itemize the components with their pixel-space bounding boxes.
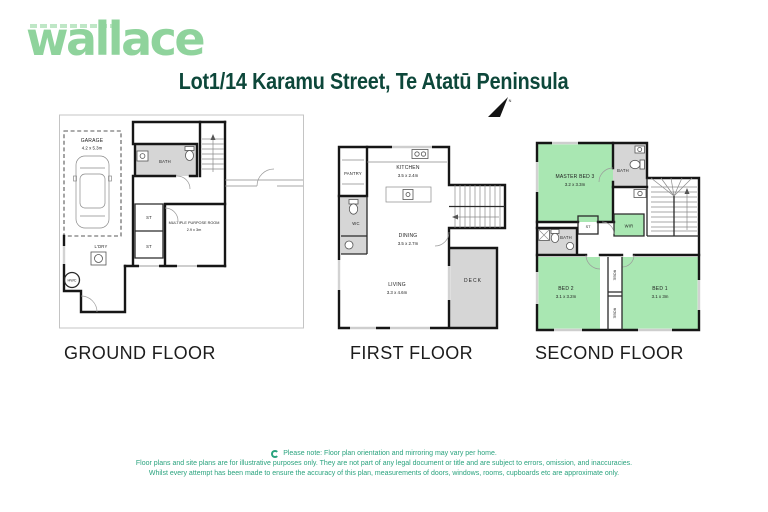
toilet-icon [630, 160, 645, 169]
stove-icon [403, 190, 413, 200]
room-label-kitchen: KITCHEN [396, 165, 420, 171]
room-label-bed1: BED 1 [652, 286, 667, 292]
disclaimer-line3: Whilst every attempt has been made to en… [0, 469, 768, 479]
stairs-ground [202, 138, 224, 172]
ground-floor-plan: GARAGE 4.2 x 5.3m BATH [57, 108, 307, 343]
room-dims-bed2: 3.1 x 3.2m [556, 294, 577, 299]
floor-label-second: SECOND FLOOR [535, 343, 684, 364]
brand-logo: wallace [26, 16, 203, 62]
room-label-bath-lower: BATH [560, 235, 572, 240]
sink-icon [412, 150, 428, 159]
room-label-pantry: PANTRY [344, 171, 362, 176]
disclaimer: Please note: Floor plan orientation and … [0, 448, 768, 478]
page-title: Lot1/14 Karamu Street, Te Atatū Peninsul… [179, 68, 532, 95]
room-dims-living: 3.3 x 4.6m [387, 290, 408, 295]
room-label-ldry: L'DRY [95, 244, 108, 249]
room-dims-kitchen: 3.5 x 2.4m [398, 173, 419, 178]
room-label-mpr: MULTIPLE PURPOSE ROOM [169, 221, 220, 225]
robe-label-lower: ROBE [613, 308, 617, 319]
window [63, 246, 197, 268]
deck-fill [449, 248, 497, 328]
disclaimer-line2: Floor plans and site plans are for illus… [0, 459, 768, 469]
brand-c-icon [271, 450, 279, 458]
floor-label-ground: GROUND FLOOR [64, 343, 216, 364]
room-label-wir: WIR [625, 224, 634, 229]
basin-icon [137, 151, 148, 161]
room-dims-master: 3.2 x 3.3m [565, 182, 586, 187]
room-label-master: MASTER BED 3 [555, 174, 594, 180]
car-icon [74, 156, 112, 228]
basin-icon [635, 146, 645, 153]
room-label-deck: DECK [464, 278, 482, 284]
room-dims-bed1: 3.1 x 3m [652, 294, 669, 299]
floor-label-first: FIRST FLOOR [350, 343, 473, 364]
room-label-st: ST [586, 225, 592, 229]
room-label-bed2: BED 2 [558, 286, 573, 292]
room-label-garage: GARAGE [81, 138, 104, 144]
toilet-icon [551, 230, 559, 243]
room-label-living: LIVING [388, 282, 406, 288]
svg-text:N: N [509, 99, 512, 103]
room-label-hwc: HWC [67, 279, 76, 283]
room-label-bath-top: BATH [617, 168, 629, 173]
basin-icon [566, 242, 573, 249]
north-arrow-icon: N [486, 94, 516, 120]
toilet-icon [185, 147, 194, 161]
room-label-wc: WC [352, 221, 359, 226]
floorplan-page: wallace Lot1/14 Karamu Street, Te Atatū … [0, 0, 768, 512]
room-dims-mpr: 2.9 x 3m [187, 228, 202, 232]
toilet-icon [349, 200, 358, 215]
room-label-st-lower: ST [146, 244, 152, 249]
room-label-st-upper: ST [146, 215, 152, 220]
basin-icon [345, 241, 353, 249]
room-dims-dining: 3.5 x 2.7m [398, 241, 419, 246]
room-label-dining: DINING [399, 233, 418, 239]
room-dims-garage: 4.2 x 5.3m [82, 146, 103, 151]
room-label-bath-ground: BATH [159, 159, 171, 164]
robe-label-upper: ROBE [613, 270, 617, 281]
first-floor-plan: PANTRY WC KITCHEN 3.5 x 2.4m DINING 3.5 … [334, 138, 512, 338]
disclaimer-line1: Please note: Floor plan orientation and … [283, 449, 497, 459]
second-floor-plan: BATH ST WIR MASTER BED 3 3.2 x 3.3m BATH… [530, 130, 712, 342]
washer-icon [91, 252, 106, 265]
